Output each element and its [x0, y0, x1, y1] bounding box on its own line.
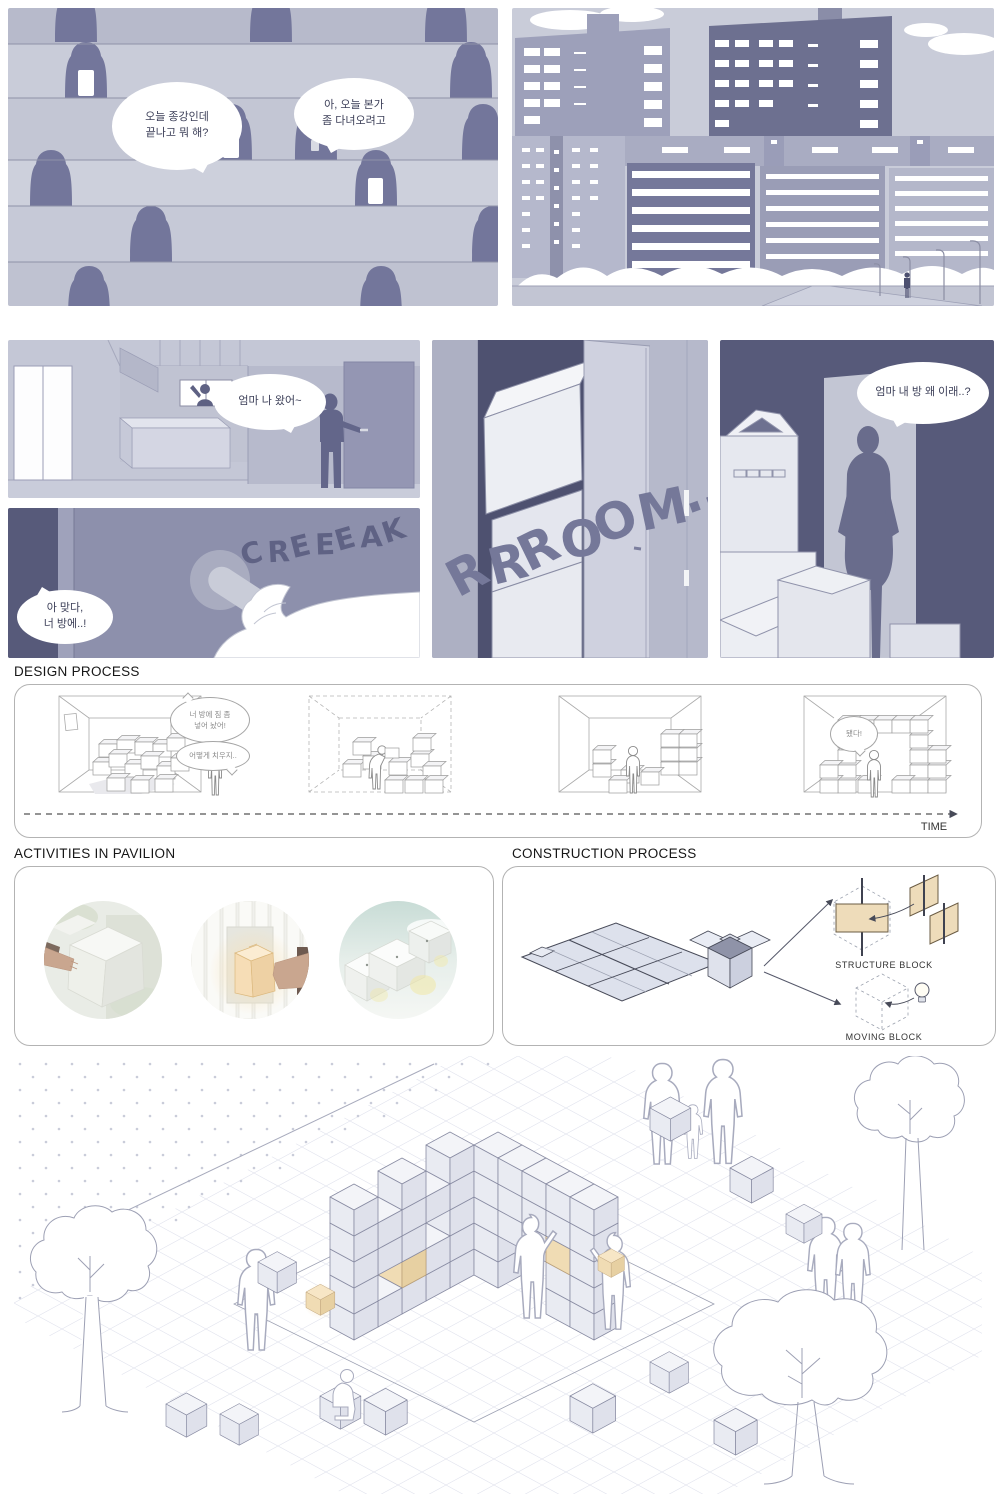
kitchen-illustration [8, 340, 420, 498]
slab-light [889, 168, 994, 276]
box-pile [93, 734, 194, 794]
time-label: TIME [921, 821, 947, 833]
tower-lower-left [512, 136, 625, 278]
city-illustration [512, 8, 994, 306]
sketch-bubble-done: 됐다! [830, 716, 878, 752]
construction-title: CONSTRUCTION PROCESS [512, 846, 697, 861]
design-sketch-2 [293, 692, 503, 804]
left-wall [432, 340, 478, 658]
speech-bubble-lecture-right: 아, 오늘 본가 좀 다녀오려고 [294, 78, 414, 150]
branch-arrows [764, 900, 840, 1004]
timeline: TIME [22, 804, 974, 834]
activity-photo-cubes-sky [339, 901, 457, 1019]
bulb-icon [915, 983, 929, 997]
front-door [344, 362, 414, 488]
sketch-bubble-mom: 너 방에 짐 좀 넣어 놨어! [170, 697, 250, 743]
box-pile [343, 734, 448, 794]
boxes-through-door [484, 360, 592, 658]
glowing-box [235, 944, 275, 997]
moving-block-label: MOVING BLOCK [846, 1032, 923, 1042]
structure-block-label: STRUCTURE BLOCK [835, 960, 933, 970]
box-stacks [593, 730, 702, 794]
design-sketch-3 [543, 692, 753, 804]
activity-photo-stacking [44, 901, 162, 1019]
comic-panel-kitchen [8, 340, 420, 498]
slab-mid [760, 166, 885, 280]
site-isometric [14, 1056, 982, 1494]
design-sketch-4 [788, 692, 997, 804]
glow-spot [410, 975, 436, 995]
moving-door-illustration: RRROOM... [432, 340, 708, 658]
construction-diagram: STRUCTURE BLOCK MOVING BLOCK [502, 866, 994, 1044]
structure-block-diagram [834, 875, 958, 956]
comic-panel-lecture-hall [8, 8, 498, 306]
design-process-title: DESIGN PROCESS [14, 664, 140, 679]
presentation-board: 오늘 종강인데 끝나고 뭐 해? 아, 오늘 본가 좀 다녀오려고 [0, 0, 997, 1500]
activity-photo-lantern [191, 901, 309, 1019]
sketch-bubble-son: 어떻게 치우지.. [176, 741, 250, 771]
comic-panel-city [512, 8, 994, 306]
kitchen-island [120, 418, 230, 468]
tower-dark [709, 8, 892, 138]
activities-title: ACTIVITIES IN PAVILION [14, 846, 175, 861]
door-handle [634, 548, 641, 549]
flat-sheet [522, 923, 718, 1001]
slab-band [625, 136, 994, 166]
carried-box [385, 748, 399, 758]
lecture-hall-illustration [8, 8, 498, 306]
person-standing [627, 746, 640, 793]
speech-bubble-messy-room: 엄마 내 방 왜 이래..? [857, 362, 989, 424]
speech-bubble-kitchen: 엄마 나 왔어~ [214, 374, 326, 430]
moving-block-diagram [856, 974, 929, 1030]
comic-panel-moving-door: RRROOM... [432, 340, 708, 658]
speech-bubble-handle: 아 맞다, 너 방에..! [17, 590, 113, 644]
speech-bubble-lecture-left: 오늘 종강인데 끝나고 뭐 해? [112, 82, 242, 170]
